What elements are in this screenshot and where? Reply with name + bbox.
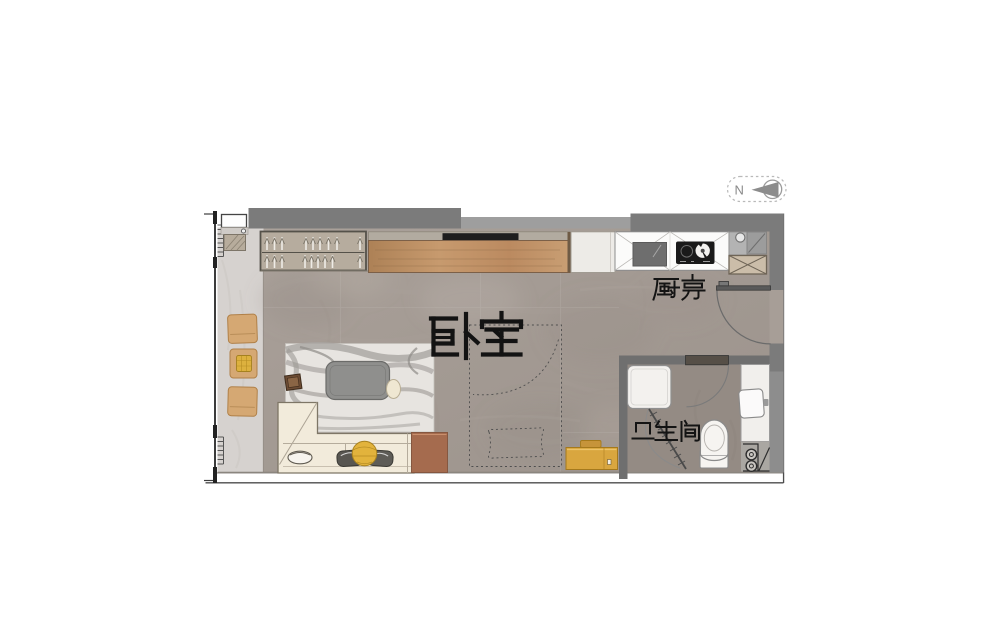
svg-text:N: N xyxy=(735,183,744,198)
